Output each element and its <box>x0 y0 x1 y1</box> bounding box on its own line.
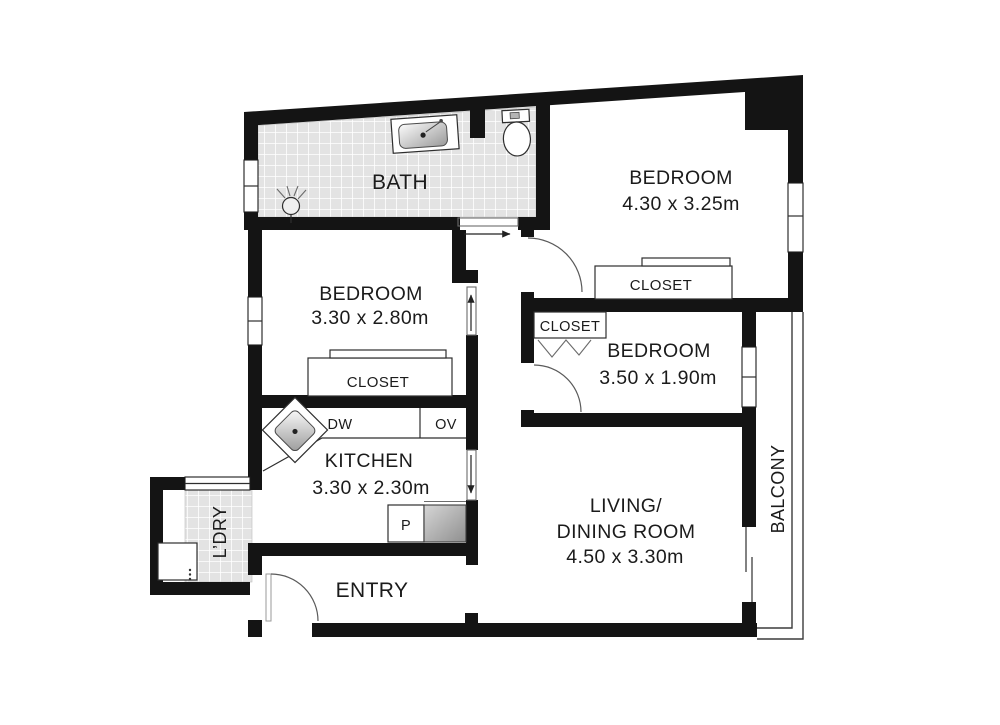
living-label-line2: DINING ROOM <box>557 521 696 543</box>
entry-label: ENTRY <box>336 579 409 602</box>
pantry-label: P <box>401 518 411 534</box>
closet-bedroom-small: CLOSET <box>534 312 606 357</box>
bath-sliding-door <box>458 218 518 234</box>
bath-pier-wall <box>470 100 485 138</box>
vanity-sink-icon <box>391 115 459 154</box>
top-right-corner-wall <box>745 76 803 130</box>
bath-label: BATH <box>372 171 428 194</box>
bedroom-top-dims: 4.30 x 3.25m <box>622 193 740 215</box>
bedroom-left-label: BEDROOM <box>319 283 423 305</box>
bedroom-small-label: BEDROOM <box>607 340 711 362</box>
laundry-window <box>185 477 250 490</box>
bedroom-left-window <box>248 297 262 345</box>
kitchen-label: KITCHEN <box>325 450 413 472</box>
closet-left-label: CLOSET <box>347 374 409 391</box>
entry-door <box>266 574 318 621</box>
closet-bedroom-top: CLOSET <box>595 258 732 299</box>
closet-hanging-marks <box>538 340 591 357</box>
bedroom-top-door-arc <box>528 238 582 292</box>
balcony-label: BALCONY <box>768 445 788 534</box>
entry-door-leaf <box>266 574 271 621</box>
fridge-icon <box>424 502 466 543</box>
dishwasher-label: DW <box>328 417 353 433</box>
bedroom-left-dims: 3.30 x 2.80m <box>311 307 429 329</box>
closet-bedroom-left: CLOSET <box>308 350 452 396</box>
bedroom-small-door-arc <box>534 365 581 412</box>
living-label-line1: LIVING/ <box>590 495 662 517</box>
bedroom-small-window <box>742 347 756 407</box>
kitchen-dims: 3.30 x 2.30m <box>312 477 430 499</box>
bedroom-top-window <box>788 183 803 252</box>
living-dims: 4.50 x 3.30m <box>566 546 684 568</box>
toilet-icon <box>502 109 531 156</box>
bedroom-small-dims: 3.50 x 1.90m <box>599 367 717 389</box>
bedroom-top-label: BEDROOM <box>629 167 733 189</box>
oven-label: OV <box>435 417 457 433</box>
floor-plan-canvas: CLOSET CLOSET CLOSET <box>0 0 1000 725</box>
washer-icon <box>158 543 197 580</box>
closet-small-label: CLOSET <box>540 319 600 335</box>
laundry-label: L’DRY <box>210 506 230 559</box>
entry-door-arc <box>271 574 318 621</box>
bath-window <box>244 160 258 212</box>
floor-plan: CLOSET CLOSET CLOSET <box>0 0 1000 725</box>
kitchen-sliding-door <box>467 450 476 500</box>
closet-top-label: CLOSET <box>630 277 692 294</box>
bedroom-left-sliding-door <box>467 287 476 335</box>
balcony-sliding-door <box>746 527 752 602</box>
